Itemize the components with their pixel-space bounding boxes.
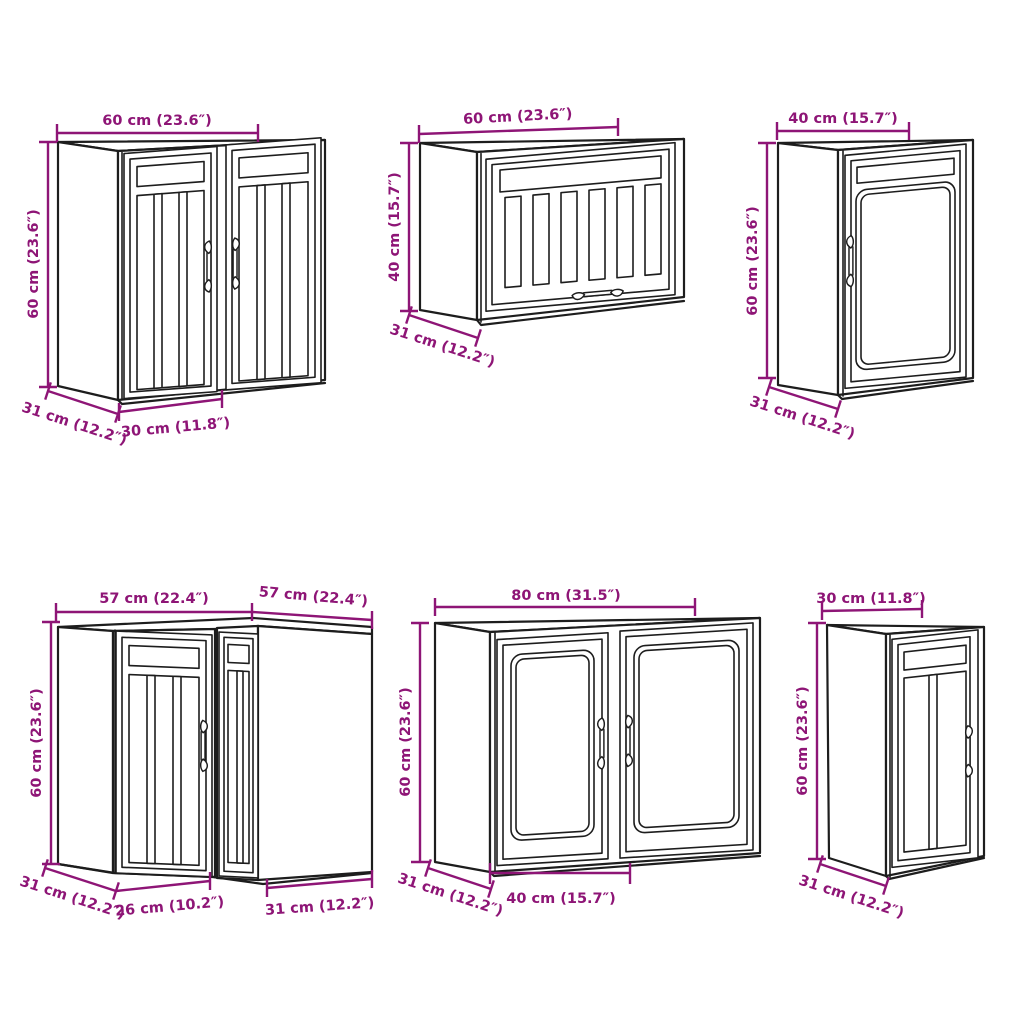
dim-label-width: 60 cm (23.6″) (463, 106, 573, 128)
left-filler-panel (58, 627, 113, 873)
side-panel (420, 143, 477, 320)
glass-panel (856, 181, 955, 370)
height-dimension: 60 cm (23.6″) (26, 142, 57, 387)
dim-label-width: 60 cm (23.6″) (102, 113, 212, 129)
dim-label-depth-left: 31 cm (12.2″) (18, 874, 127, 923)
cabinet-body (827, 625, 984, 879)
cabinet-40x60-glass-door: 40 cm (15.7″) 60 cm (23.6″) 31 cm (12.2″… (745, 111, 973, 443)
doors (497, 623, 753, 866)
side-panel (827, 625, 886, 876)
dim-label-door-width: 30 cm (11.8″) (120, 415, 230, 440)
cabinet-80x60-glass-double-door: 80 cm (31.5″) 60 cm (23.6″) 31 cm (12.2″… (396, 588, 760, 920)
glass-panel (634, 640, 739, 833)
dim-label-width: 40 cm (15.7″) (788, 111, 898, 127)
cabinet-57x57-corner: 57 cm (22.4″) 57 cm (22.4″) 60 cm (23.6″… (18, 584, 375, 922)
width-dimension: 60 cm (23.6″) (57, 113, 258, 142)
width-dimension: 80 cm (31.5″) (435, 588, 695, 616)
dim-label-height: 60 cm (23.6″) (745, 206, 761, 316)
cabinet-30x60-single-door: 30 cm (11.8″) 60 cm (23.6″) 31 cm (12.2″… (795, 591, 984, 922)
dim-label-depth-right: 31 cm (12.2″) (265, 895, 375, 919)
dim-label-depth: 31 cm (12.2″) (388, 322, 497, 371)
dim-label-height: 60 cm (23.6″) (398, 687, 414, 797)
kitchen-wall-cabinet-set-diagram: 60 cm (23.6″) 60 cm (23.6″) 31 cm (12.2″… (0, 0, 1024, 1024)
height-dimension: 60 cm (23.6″) (745, 143, 776, 378)
right-side-face (258, 626, 372, 880)
dim-label-height: 60 cm (23.6″) (26, 209, 42, 319)
dim-label-width: 30 cm (11.8″) (816, 591, 926, 607)
dim-label-depth: 31 cm (12.2″) (20, 400, 129, 449)
dim-label-door-width: 26 cm (10.2″) (114, 894, 224, 919)
cabinet-dimension-diagram: 60 cm (23.6″) 60 cm (23.6″) 31 cm (12.2″… (0, 0, 1024, 1024)
cabinet-body (420, 139, 684, 325)
left-door (116, 631, 212, 877)
height-dimension: 40 cm (15.7″) (387, 143, 418, 311)
dim-label-width-left: 57 cm (22.4″) (99, 591, 209, 607)
height-dimension: 60 cm (23.6″) (398, 623, 429, 862)
cabinet-body (58, 138, 325, 404)
cabinet-body (778, 140, 973, 399)
side-panel (435, 623, 490, 872)
width-left-dimension: 57 cm (22.4″) (56, 591, 252, 621)
corner-door (219, 632, 258, 878)
height-dimension: 60 cm (23.6″) (29, 622, 60, 864)
door-width-dimension: 26 cm (10.2″) (114, 872, 224, 920)
door (892, 630, 978, 867)
cabinet-60x40-flip-door: 60 cm (23.6″) 40 cm (15.7″) 31 cm (12.2″… (387, 106, 684, 371)
width-dimension: 60 cm (23.6″) (419, 106, 618, 143)
dim-label-width: 80 cm (31.5″) (511, 588, 621, 604)
dim-label-door-width: 40 cm (15.7″) (506, 891, 616, 907)
door (845, 144, 966, 388)
glass-panel (511, 650, 594, 841)
width-dimension: 30 cm (11.8″) (816, 591, 926, 620)
height-dimension: 60 cm (23.6″) (795, 623, 826, 859)
side-panel (58, 142, 118, 400)
dim-label-height: 60 cm (23.6″) (795, 686, 811, 796)
width-dimension: 40 cm (15.7″) (777, 111, 909, 140)
side-panel (778, 143, 838, 395)
cabinet-60x60-two-door: 60 cm (23.6″) 60 cm (23.6″) 31 cm (12.2″… (20, 113, 325, 449)
cabinet-body (435, 618, 760, 876)
dim-label-height: 40 cm (15.7″) (387, 172, 403, 282)
door (486, 143, 675, 312)
dim-label-height: 60 cm (23.6″) (29, 688, 45, 798)
dim-label-width-right: 57 cm (22.4″) (258, 584, 368, 609)
cabinet-body (58, 618, 372, 884)
